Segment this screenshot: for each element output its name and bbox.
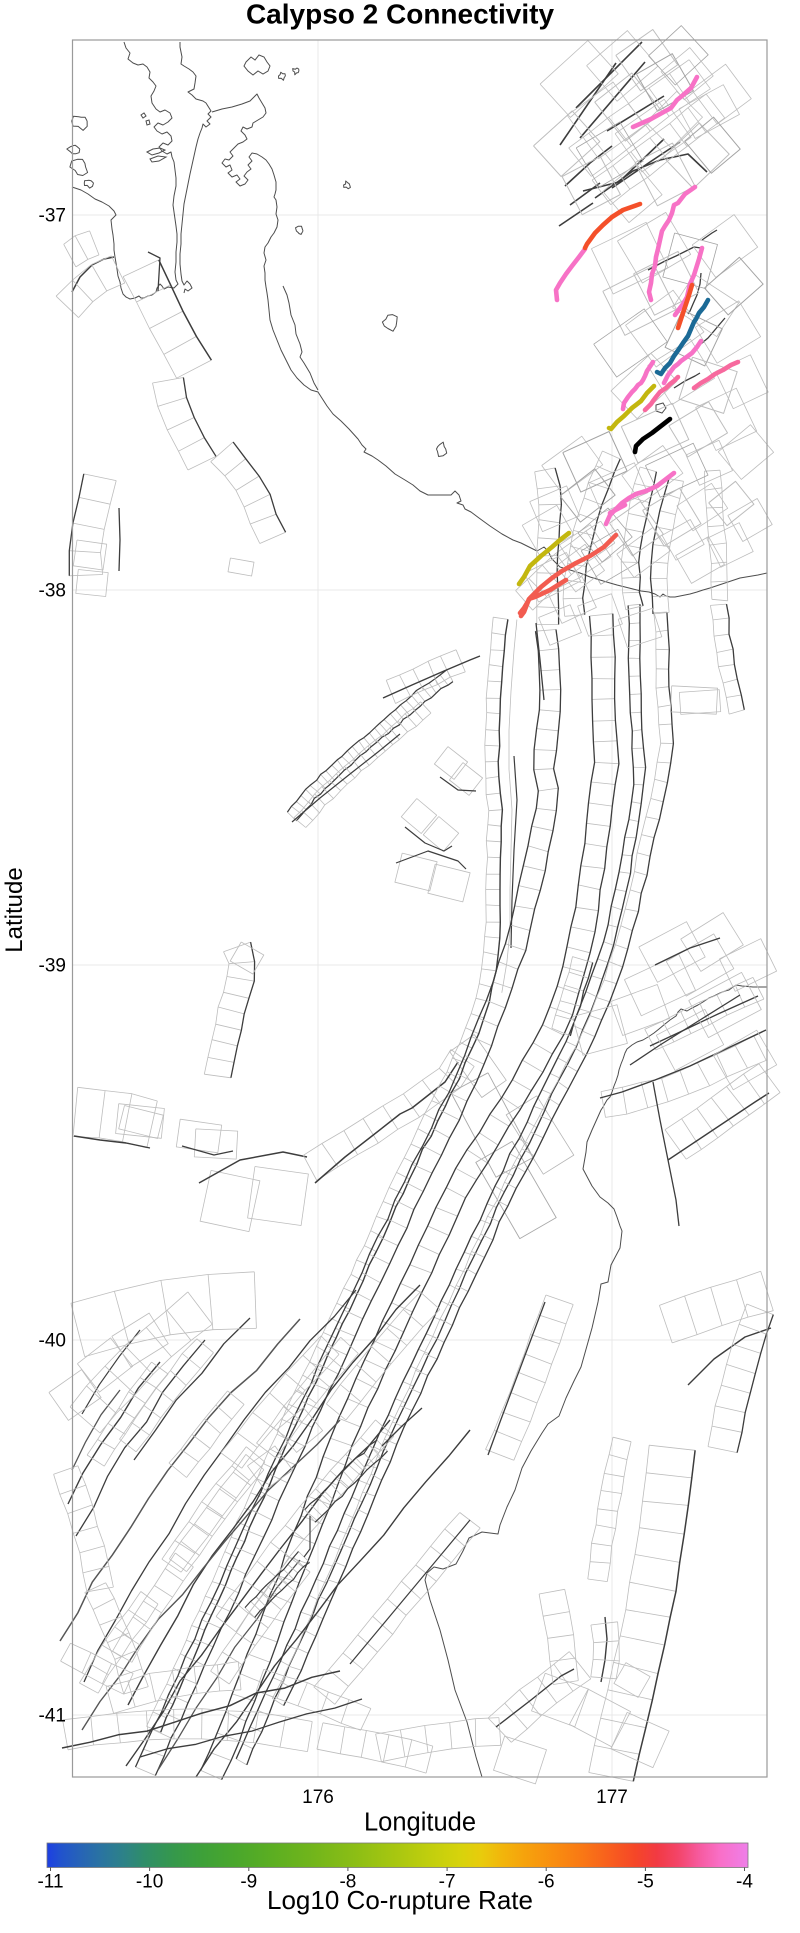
- svg-text:-37: -37: [39, 206, 66, 227]
- svg-text:177: 177: [596, 1787, 628, 1808]
- svg-text:-10: -10: [136, 1872, 163, 1893]
- svg-text:Calypso 2 Connectivity: Calypso 2 Connectivity: [246, 0, 555, 30]
- svg-text:Latitude: Latitude: [1, 867, 28, 952]
- svg-text:-9: -9: [240, 1872, 257, 1893]
- svg-text:-38: -38: [39, 581, 66, 602]
- svg-text:-11: -11: [37, 1872, 63, 1893]
- svg-text:-4: -4: [736, 1872, 753, 1893]
- svg-text:Longitude: Longitude: [364, 1809, 476, 1837]
- svg-text:-6: -6: [538, 1872, 555, 1893]
- svg-text:176: 176: [302, 1787, 334, 1808]
- svg-text:Log10 Co-rupture Rate: Log10 Co-rupture Rate: [267, 1885, 533, 1915]
- svg-text:-5: -5: [637, 1872, 654, 1893]
- svg-text:-41: -41: [39, 1706, 66, 1727]
- svg-text:-39: -39: [39, 956, 66, 977]
- svg-text:-40: -40: [39, 1331, 66, 1352]
